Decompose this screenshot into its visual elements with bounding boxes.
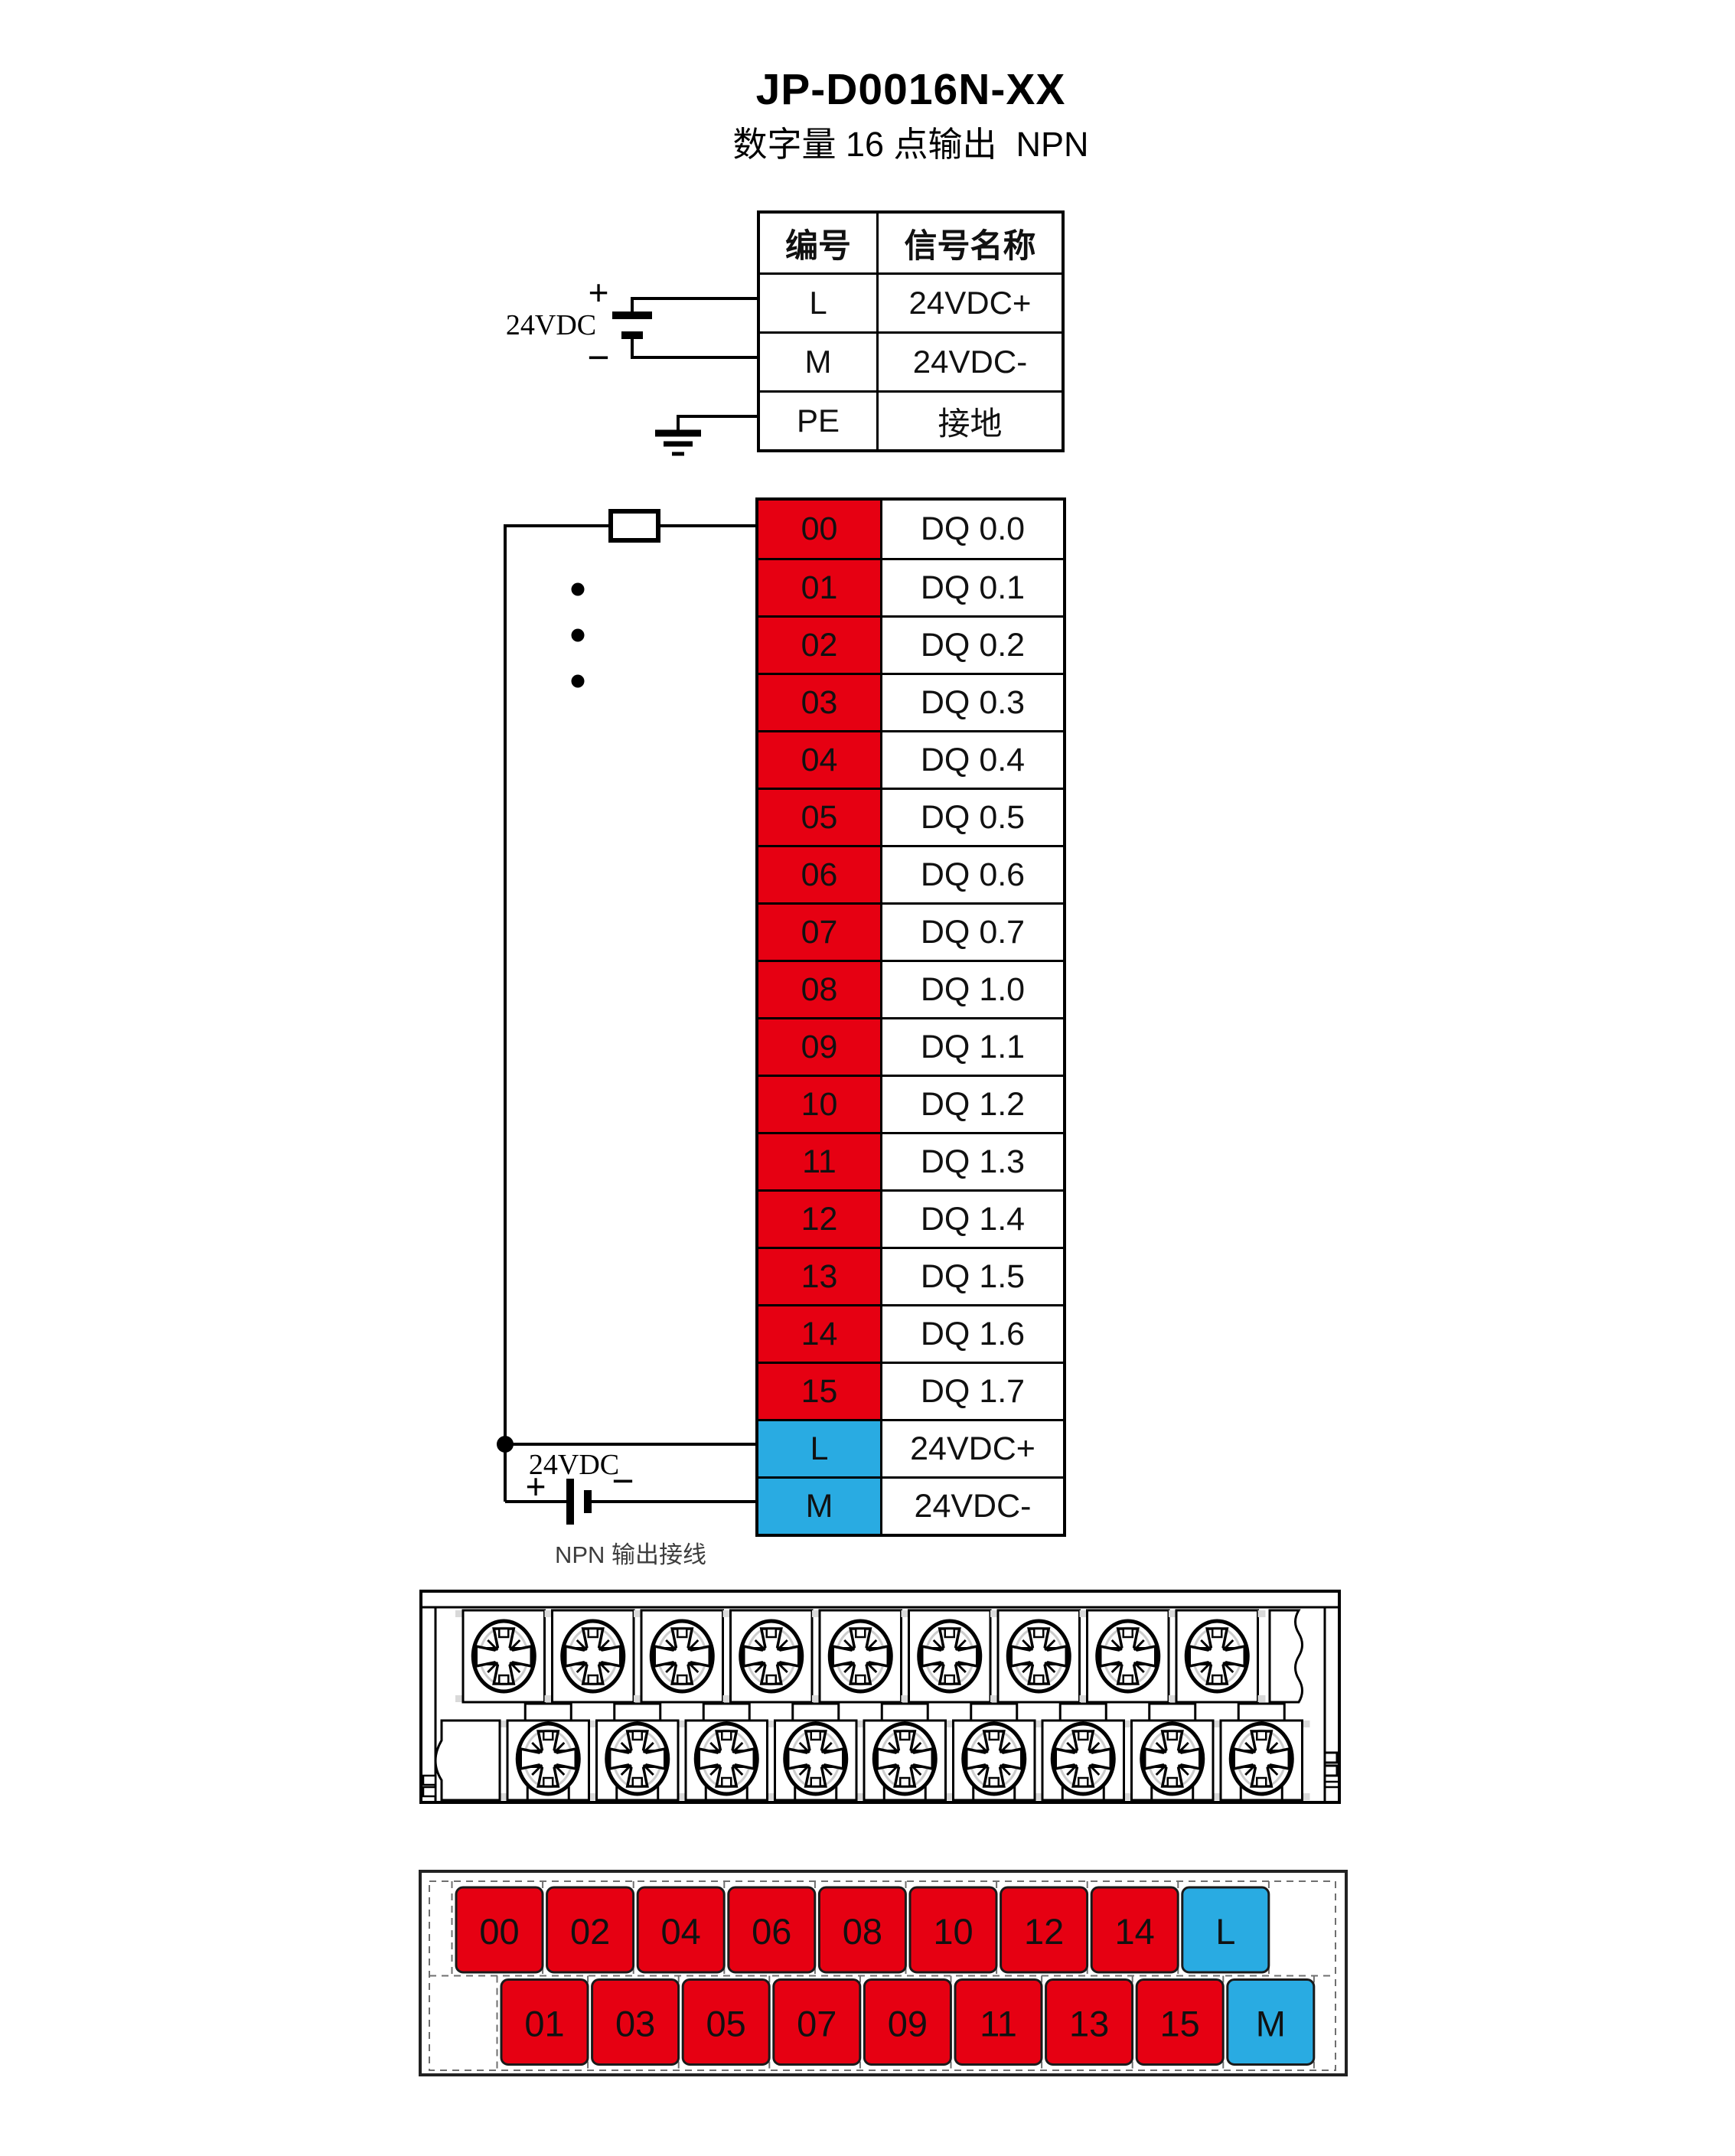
signal-name-cell: 24VDC+ bbox=[879, 275, 1062, 331]
terminal-number-cell: 12 bbox=[758, 1192, 882, 1247]
signal-name-cell: 24VDC+ bbox=[882, 1421, 1063, 1476]
output-plus-label: + bbox=[526, 1466, 546, 1506]
signal-name-cell: 24VDC- bbox=[879, 334, 1062, 390]
terminal-pad-label: 07 bbox=[797, 2004, 837, 2044]
signal-name-cell: DQ 0.2 bbox=[882, 618, 1063, 673]
signal-name-cell: 24VDC- bbox=[882, 1479, 1063, 1534]
output-table-row: L24VDC+ bbox=[758, 1419, 1063, 1476]
terminal-number-cell: 15 bbox=[758, 1364, 882, 1419]
load-resistor-icon bbox=[611, 511, 658, 540]
terminal-pad-label: M bbox=[1256, 2004, 1286, 2044]
output-table-row: 12DQ 1.4 bbox=[758, 1189, 1063, 1247]
signal-name-cell: DQ 0.6 bbox=[882, 847, 1063, 902]
terminal-pad-label: 05 bbox=[706, 2004, 746, 2044]
signal-name-cell: DQ 1.0 bbox=[882, 962, 1063, 1017]
terminal-pad-label: 02 bbox=[570, 1911, 610, 1952]
output-table-row: 13DQ 1.5 bbox=[758, 1247, 1063, 1304]
output-minus-label: − bbox=[611, 1460, 634, 1502]
output-table-row: 08DQ 1.0 bbox=[758, 960, 1063, 1017]
output-table-row: 07DQ 0.7 bbox=[758, 902, 1063, 960]
signal-name-cell: DQ 1.1 bbox=[882, 1019, 1063, 1075]
power-minus-label: − bbox=[587, 336, 609, 379]
power-table-header-number: 编号 bbox=[760, 214, 879, 272]
npn-wiring-caption: NPN 输出接线 bbox=[555, 1541, 706, 1568]
screw-icon bbox=[830, 1621, 891, 1691]
terminal-number-cell: PE bbox=[760, 393, 879, 449]
power-table: 编号 信号名称 L 24VDC+ M 24VDC- PE 接地 bbox=[757, 210, 1065, 452]
output-table-row: 09DQ 1.1 bbox=[758, 1017, 1063, 1075]
screw-icon bbox=[563, 1621, 624, 1691]
screw-icon bbox=[1142, 1724, 1203, 1794]
screw-icon bbox=[651, 1621, 713, 1691]
terminal-number-cell: 09 bbox=[758, 1019, 882, 1075]
power-table-header-row: 编号 信号名称 bbox=[760, 214, 1062, 272]
output-table-row: 14DQ 1.6 bbox=[758, 1304, 1063, 1362]
screw-icon bbox=[1231, 1724, 1292, 1794]
ellipsis-dots-icon bbox=[572, 583, 585, 688]
terminal-pad-label: 13 bbox=[1069, 2004, 1109, 2044]
power-supply-label: 24VDC bbox=[506, 309, 596, 341]
signal-name-cell: DQ 0.0 bbox=[882, 501, 1063, 558]
power-table-row: M 24VDC- bbox=[760, 331, 1062, 390]
terminal-number-cell: M bbox=[758, 1479, 882, 1534]
output-table-row: 06DQ 0.6 bbox=[758, 845, 1063, 902]
page-subtitle: 数字量 16 点输出 NPN bbox=[732, 116, 1088, 166]
signal-name-cell: 接地 bbox=[879, 393, 1062, 449]
signal-name-cell: DQ 0.1 bbox=[882, 560, 1063, 615]
output-wiring-diagram: 24VDC + − NPN 输出接线 bbox=[459, 490, 759, 1584]
terminal-pad-label: 01 bbox=[524, 2004, 564, 2044]
terminal-pad-label: 14 bbox=[1115, 1911, 1155, 1952]
screw-icon bbox=[785, 1724, 846, 1794]
output-table-row: 02DQ 0.2 bbox=[758, 615, 1063, 673]
terminal-pad-label: 00 bbox=[479, 1911, 519, 1952]
terminal-pad-label: 09 bbox=[888, 2004, 928, 2044]
output-table-row: 10DQ 1.2 bbox=[758, 1075, 1063, 1132]
ground-icon bbox=[655, 433, 701, 454]
terminal-map: 0002040608101214L0103050709111315M bbox=[419, 1870, 1348, 2079]
output-table-row: 05DQ 0.5 bbox=[758, 788, 1063, 845]
rail-clip bbox=[435, 1721, 500, 1800]
terminal-number-cell: 13 bbox=[758, 1249, 882, 1304]
terminal-pad-label: 12 bbox=[1024, 1911, 1064, 1952]
screw-icon bbox=[919, 1621, 980, 1691]
screw-icon bbox=[964, 1724, 1025, 1794]
output-table-row: 15DQ 1.7 bbox=[758, 1362, 1063, 1419]
terminal-pad-label: 08 bbox=[843, 1911, 882, 1952]
terminal-pad-label: L bbox=[1215, 1911, 1235, 1952]
terminal-block-drawing bbox=[419, 1589, 1342, 1805]
terminal-number-cell: 11 bbox=[758, 1134, 882, 1189]
output-table-row: M24VDC- bbox=[758, 1476, 1063, 1534]
junction-dot bbox=[497, 1436, 514, 1453]
output-table-row: 04DQ 0.4 bbox=[758, 730, 1063, 788]
output-table: 00DQ 0.001DQ 0.102DQ 0.203DQ 0.304DQ 0.4… bbox=[755, 497, 1066, 1537]
battery-icon bbox=[570, 1479, 588, 1525]
screw-icon bbox=[607, 1724, 668, 1794]
terminal-number-cell: L bbox=[758, 1421, 882, 1476]
power-wiring-diagram: 24VDC + − bbox=[444, 201, 759, 458]
signal-name-cell: DQ 1.6 bbox=[882, 1306, 1063, 1362]
terminal-number-cell: 10 bbox=[758, 1077, 882, 1132]
output-table-row: 11DQ 1.3 bbox=[758, 1132, 1063, 1189]
signal-name-cell: DQ 1.3 bbox=[882, 1134, 1063, 1189]
power-table-row: PE 接地 bbox=[760, 390, 1062, 449]
terminal-pad-label: 11 bbox=[980, 2004, 1017, 2044]
terminal-pad-label: 06 bbox=[752, 1911, 791, 1952]
output-table-row: 03DQ 0.3 bbox=[758, 673, 1063, 730]
terminal-number-cell: 03 bbox=[758, 675, 882, 730]
output-wires bbox=[505, 526, 759, 1502]
terminal-number-cell: 07 bbox=[758, 905, 882, 960]
screw-icon bbox=[1097, 1621, 1159, 1691]
terminal-number-cell: 02 bbox=[758, 618, 882, 673]
terminal-number-cell: 08 bbox=[758, 962, 882, 1017]
power-table-header-signal: 信号名称 bbox=[879, 214, 1062, 272]
signal-name-cell: DQ 0.3 bbox=[882, 675, 1063, 730]
signal-name-cell: DQ 1.7 bbox=[882, 1364, 1063, 1419]
signal-name-cell: DQ 1.5 bbox=[882, 1249, 1063, 1304]
terminal-pad-label: 10 bbox=[933, 1911, 973, 1952]
output-table-row: 00DQ 0.0 bbox=[758, 501, 1063, 558]
screw-icon bbox=[741, 1621, 802, 1691]
screw-icon bbox=[517, 1724, 579, 1794]
page-title: JP-D0016N-XX bbox=[756, 64, 1066, 115]
terminal-number-cell: 06 bbox=[758, 847, 882, 902]
battery-icon bbox=[612, 315, 652, 335]
terminal-number-cell: 04 bbox=[758, 732, 882, 788]
terminal-number-cell: 01 bbox=[758, 560, 882, 615]
power-table-row: L 24VDC+ bbox=[760, 272, 1062, 331]
screw-icon bbox=[696, 1724, 757, 1794]
signal-name-cell: DQ 0.4 bbox=[882, 732, 1063, 788]
screw-icon bbox=[874, 1724, 935, 1794]
terminal-pad-label: 15 bbox=[1160, 2004, 1200, 2044]
signal-name-cell: DQ 0.7 bbox=[882, 905, 1063, 960]
power-plus-label: + bbox=[589, 272, 609, 312]
terminal-pad-label: 04 bbox=[661, 1911, 701, 1952]
terminal-number-cell: 05 bbox=[758, 790, 882, 845]
signal-name-cell: DQ 1.4 bbox=[882, 1192, 1063, 1247]
screw-icon bbox=[1008, 1621, 1069, 1691]
signal-name-cell: DQ 1.2 bbox=[882, 1077, 1063, 1132]
terminal-number-cell: M bbox=[760, 334, 879, 390]
terminal-pad-label: 03 bbox=[615, 2004, 655, 2044]
terminal-number-cell: L bbox=[760, 275, 879, 331]
output-table-row: 01DQ 0.1 bbox=[758, 558, 1063, 615]
signal-name-cell: DQ 0.5 bbox=[882, 790, 1063, 845]
screw-icon bbox=[473, 1621, 534, 1691]
terminal-number-cell: 00 bbox=[758, 501, 882, 558]
screw-icon bbox=[1186, 1621, 1247, 1691]
terminal-number-cell: 14 bbox=[758, 1306, 882, 1362]
screw-icon bbox=[1052, 1724, 1114, 1794]
